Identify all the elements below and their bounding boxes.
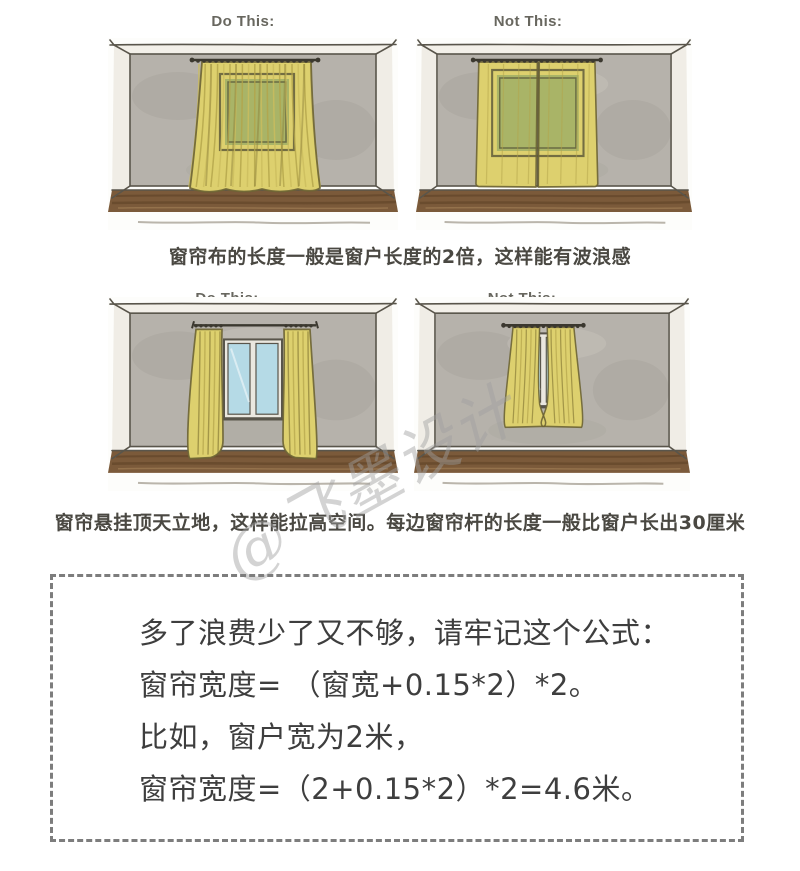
room-ceiling — [114, 304, 392, 313]
room-sidewall-left — [112, 304, 130, 459]
sketch-underline — [138, 222, 370, 223]
formula-line-result: 窗帘宽度=（2+0.15*2）*2=4.6米。 — [139, 763, 670, 815]
room-ceiling — [114, 45, 392, 54]
room-drawing — [414, 297, 690, 491]
formula-line-example: 比如，窗户宽为2米， — [139, 711, 670, 763]
room-sidewall-right — [669, 304, 686, 459]
panel-header-do-this-row1: Do This: — [211, 13, 274, 30]
room-ceiling — [422, 45, 687, 54]
room-sidewall-right — [376, 304, 394, 459]
room-drawing — [108, 38, 398, 230]
sketch-underline — [138, 483, 370, 484]
room-illustration-correct-curtain-fullness — [108, 38, 398, 230]
caption-row2: 窗帘悬挂顶天立地，这样能拉高空间。每边窗帘杆的长度一般比窗户长出30厘米 — [0, 508, 800, 535]
room-sidewall-right — [376, 45, 394, 198]
panel-header-not-this-row1: Not This: — [494, 13, 563, 30]
room-sidewall-left — [112, 45, 130, 198]
room-sidewall-left — [418, 304, 435, 459]
formula-line-formula: 窗帘宽度= （窗宽+0.15*2）*2。 — [139, 659, 670, 711]
sketch-underline — [443, 483, 664, 484]
room-drawing — [108, 297, 398, 491]
room-sidewall-left — [420, 45, 437, 198]
room-illustration-floor-to-ceiling-curtain — [108, 297, 398, 491]
room-illustration-flat-curtain — [416, 38, 692, 230]
room-illustration-short-curtain — [414, 297, 690, 491]
formula-box: 多了浪费少了又不够，请牢记这个公式： 窗帘宽度= （窗宽+0.15*2）*2。 … — [50, 574, 744, 842]
window — [219, 339, 287, 419]
room-sidewall-right — [671, 45, 688, 198]
room-drawing — [416, 38, 692, 230]
formula-text-block: 多了浪费少了又不够，请牢记这个公式： 窗帘宽度= （窗宽+0.15*2）*2。 … — [139, 607, 670, 815]
formula-line-intro: 多了浪费少了又不够，请牢记这个公式： — [139, 607, 670, 659]
room-ceiling — [420, 304, 685, 313]
sketch-underline — [445, 222, 666, 223]
caption-row1: 窗帘布的长度一般是窗户长度的2倍，这样能有波浪感 — [0, 242, 800, 269]
